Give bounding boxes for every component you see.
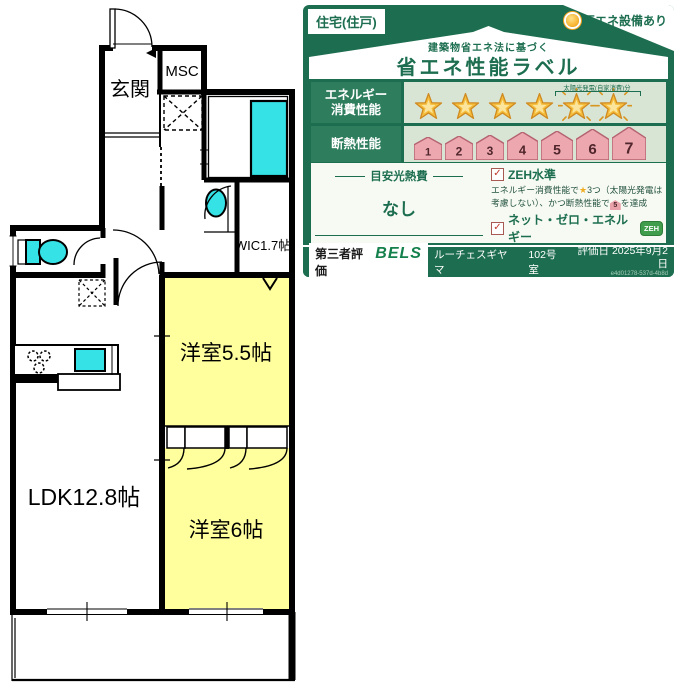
toilet xyxy=(18,238,100,265)
zeh-desc-part4: を達成 xyxy=(621,198,647,208)
utility-cost-section: 目安光熱費 なし xyxy=(311,163,487,243)
star-icon xyxy=(484,88,521,125)
kitchen-sink xyxy=(75,349,105,371)
storage-space xyxy=(79,280,105,306)
svg-text:7: 7 xyxy=(625,140,634,157)
ldk-label: LDK12.8帖 xyxy=(28,484,141,510)
energy-performance-label-card: 住宅(住戸) 再エネ設備あり 建築物省エネ法に基づく 省エネ性能ラベル エネルギ… xyxy=(303,5,674,277)
bedroom-small-label: 洋室5.5帖 xyxy=(180,342,272,365)
door-direction-arrow xyxy=(146,48,156,58)
certifier-label: 第三者評価 xyxy=(315,245,370,277)
renewable-label: 再エネ設備あり xyxy=(583,12,667,29)
bathroom xyxy=(200,97,288,178)
insulation-field: 1234567 xyxy=(404,126,666,162)
star-icon: ★ xyxy=(579,185,587,195)
renewable-badge: 再エネ設備あり xyxy=(566,12,667,29)
hall-doors xyxy=(113,230,162,306)
house-icon-level-1: 1 xyxy=(414,137,442,160)
zeh-badge-icon: ZEH xyxy=(640,221,663,236)
kitchen xyxy=(14,345,120,390)
washbasin xyxy=(204,186,237,232)
energy-row-label-line2: 消費性能 xyxy=(331,103,381,118)
house-icon: 5 xyxy=(610,200,621,210)
svg-text:6: 6 xyxy=(588,141,596,158)
insulation-houses: 1234567 xyxy=(414,127,646,160)
utility-cost-label: 目安光熱費 xyxy=(370,168,428,184)
building-name: ルーチェスギヤマ xyxy=(434,247,514,277)
svg-text:3: 3 xyxy=(487,144,494,158)
dash-line xyxy=(433,176,463,177)
energy-row-label-line1: エネルギー xyxy=(325,88,388,103)
house-icon-level-4: 4 xyxy=(507,132,538,160)
washer-space xyxy=(164,96,202,130)
net-zero-label: ネット・ゼロ・エネルギー xyxy=(508,211,634,245)
energy-consumption-row: エネルギー 消費性能 太陽光発電(自家消費)分 xyxy=(311,82,666,123)
unit-number: 102号室 xyxy=(528,247,565,277)
star-icon xyxy=(447,88,484,125)
label-title: 省エネ性能ラベル xyxy=(303,51,674,80)
genkan-label: 玄関 xyxy=(110,78,150,101)
evaluation-date-value: 2025年9月2日 xyxy=(612,245,668,270)
energy-row-label: エネルギー 消費性能 xyxy=(311,82,401,123)
house-icon-level-2: 2 xyxy=(445,136,473,160)
certifier-box: 第三者評価 BELS xyxy=(309,243,428,277)
insulation-row-label: 断熱性能 xyxy=(311,126,401,162)
genkan-step xyxy=(104,133,159,137)
zeh-desc-part2: 3つ（太陽光発電 xyxy=(587,185,653,195)
zeh-level-label: ZEH水準 xyxy=(508,166,556,183)
insulation-label-text: 断熱性能 xyxy=(331,137,381,152)
house-icon-level-6: 6 xyxy=(576,129,609,160)
utility-cost-value: なし xyxy=(311,195,487,220)
house-icon-level-7: 7 xyxy=(612,127,646,160)
solar-bracket xyxy=(555,91,641,96)
svg-text:1: 1 xyxy=(425,146,431,158)
property-type-badge: 住宅(住戸) xyxy=(308,9,385,34)
house-icon-level-5: 5 xyxy=(541,131,573,160)
msc-label: MSC xyxy=(165,63,199,80)
certifier-name: BELS xyxy=(375,245,422,263)
house-icon-level-3: 3 xyxy=(476,135,504,160)
divider-line xyxy=(315,235,483,236)
balcony xyxy=(12,615,295,681)
checkbox-check-icon: ✓ xyxy=(491,222,504,235)
evaluation-date-label: 評価日 xyxy=(578,245,610,257)
net-zero-row: ✓ ネット・ゼロ・エネルギー ZEH xyxy=(491,211,663,245)
svg-text:4: 4 xyxy=(519,142,527,157)
star-icon xyxy=(521,88,558,125)
sun-icon xyxy=(566,14,579,27)
svg-text:2: 2 xyxy=(456,144,463,158)
details-panel: 目安光熱費 なし ✓ ZEH水準 エネルギー消費性能で★3つ（太陽光発電は考慮し… xyxy=(311,163,666,243)
sink xyxy=(206,190,226,217)
floor-plan: 玄関 MSC WIC1.7帖 洋室5.5帖 LDK12.8帖 洋室6帖 xyxy=(0,0,300,694)
evaluation-code: e4d01278-537d-4b8d xyxy=(571,271,668,277)
energy-star-field: 太陽光発電(自家消費)分 xyxy=(404,82,666,123)
insulation-row: 断熱性能 1234567 xyxy=(311,126,666,162)
evaluation-info: 評価日 2025年9月2日 e4d01278-537d-4b8d xyxy=(571,245,668,277)
bathtub xyxy=(251,101,287,176)
entrance-door xyxy=(110,9,156,58)
zeh-level-desc: エネルギー消費性能で★3つ（太陽光発電は考慮しない）、かつ断熱性能で5を達成 xyxy=(491,184,663,210)
checkbox-check-icon: ✓ xyxy=(491,168,504,181)
star-icon xyxy=(410,88,447,125)
wic-label: WIC1.7帖 xyxy=(235,238,291,253)
zeh-desc-part1: エネルギー消費性能で xyxy=(491,185,579,195)
certification-footer: 第三者評価 BELS ルーチェスギヤマ 102号室 評価日 2025年9月2日 … xyxy=(303,245,674,277)
evaluation-date: 評価日 2025年9月2日 xyxy=(571,245,668,271)
dash-line xyxy=(335,176,365,177)
svg-text:5: 5 xyxy=(553,141,561,157)
bedroom-large-label: 洋室6帖 xyxy=(189,519,264,542)
zeh-level-row: ✓ ZEH水準 xyxy=(491,166,663,183)
